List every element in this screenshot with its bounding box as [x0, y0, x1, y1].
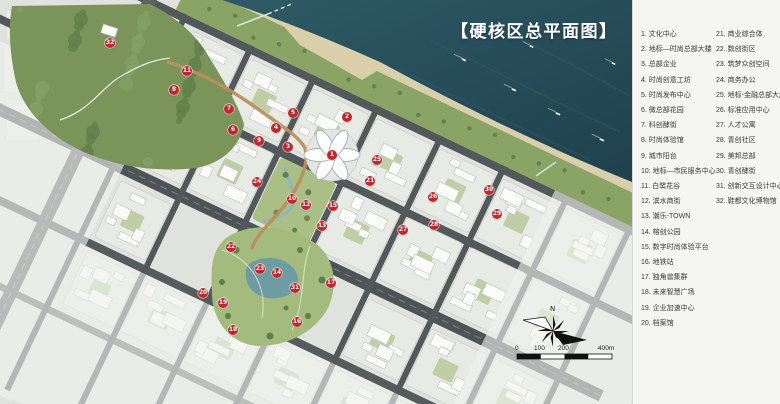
legend-column-1: 1. 文化中心2. 地标—时尚总部大楼3. 总部企业4. 时尚创意工坊5. 时尚… — [641, 27, 716, 331]
map-marker-9: 9 — [254, 136, 264, 146]
legend-item-29: 29. 美邦总部 — [716, 149, 780, 164]
legend-item-7: 7. 科创酵街 — [641, 118, 716, 133]
map-marker-1: 1 — [327, 150, 337, 160]
legend-item-9: 9. 城市阳台 — [641, 149, 716, 164]
map-marker-3: 3 — [283, 142, 293, 152]
legend-item-31: 31. 创新交互设计中心 — [716, 179, 780, 194]
legend-item-22: 22. 数创街区 — [716, 42, 780, 57]
map-marker-29: 29 — [492, 209, 502, 219]
map-marker-14: 14 — [272, 268, 282, 278]
legend-item-13: 13. 潮乐-TOWN — [641, 209, 716, 224]
map-marker-20: 20 — [198, 288, 208, 298]
legend-item-24: 24. 商务办公 — [716, 73, 780, 88]
legend-item-30: 30. 青创酵街 — [716, 164, 780, 179]
map-marker-7: 7 — [224, 104, 234, 114]
legend-item-5: 5. 时尚发布中心 — [641, 88, 716, 103]
legend-item-20: 20. 档案馆 — [641, 316, 716, 331]
legend-item-14: 14. 榕创公园 — [641, 225, 716, 240]
legend-item-23: 23. 筑梦众创空间 — [716, 57, 780, 72]
map-marker-19: 19 — [218, 298, 228, 308]
map-marker-11: 11 — [182, 66, 192, 76]
legend-item-8: 8. 时尚体验馆 — [641, 133, 716, 148]
map-marker-30: 30 — [484, 185, 494, 195]
map-canvas: N 0 100 200 400m 12345678910111213141516… — [0, 0, 632, 404]
legend-item-2: 2. 地标—时尚总部大楼 — [641, 42, 716, 57]
legend-column-2: 21. 商业综合体22. 数创街区23. 筑梦众创空间24. 商务办公25. 地… — [716, 27, 780, 209]
map-marker-5: 5 — [288, 108, 298, 118]
scale-label-400: 400m — [598, 345, 614, 352]
legend-item-25: 25. 地标-金融总部大厦 — [716, 88, 780, 103]
plan-title: 【硬核区总平面图】 — [451, 17, 631, 42]
map-marker-17: 17 — [326, 278, 336, 288]
legend-item-28: 28. 青创社区 — [716, 133, 780, 148]
map-marker-32: 32 — [105, 38, 115, 48]
legend-item-19: 19. 企业加速中心 — [641, 301, 716, 316]
map-marker-21: 21 — [365, 176, 375, 186]
legend-item-4: 4. 时尚创意工坊 — [641, 73, 716, 88]
legend-item-15: 15. 数字时尚体验平台 — [641, 240, 716, 255]
map-marker-12: 12 — [301, 200, 311, 210]
map-marker-28: 28 — [429, 220, 439, 230]
scale-label-100: 100 — [534, 345, 545, 352]
map-marker-13: 13 — [317, 221, 327, 231]
masterplan-image: N 0 100 200 400m 12345678910111213141516… — [0, 0, 780, 404]
legend-item-16: 16. 地铁站 — [641, 255, 716, 270]
legend-item-6: 6. 微总部花园 — [641, 103, 716, 118]
map-marker-27: 27 — [398, 225, 408, 235]
map-marker-26: 26 — [428, 192, 438, 202]
legend-panel: 1. 文化中心2. 地标—时尚总部大楼3. 总部企业4. 时尚创意工坊5. 时尚… — [632, 0, 780, 404]
map-marker-15: 15 — [328, 201, 338, 211]
legend-item-3: 3. 总部企业 — [641, 57, 716, 72]
map-marker-8: 8 — [169, 85, 179, 95]
map-marker-10: 10 — [287, 194, 297, 204]
legend-item-27: 27. 人才公寓 — [716, 118, 780, 133]
legend-item-1: 1. 文化中心 — [641, 27, 716, 42]
legend-item-12: 12. 滨水商街 — [641, 194, 716, 209]
map-marker-18: 18 — [228, 325, 238, 335]
map-marker-22: 22 — [226, 242, 236, 252]
legend-item-18: 18. 未来智慧广场 — [641, 285, 716, 300]
scale-label-0: 0 — [515, 345, 519, 352]
map-marker-31: 31 — [290, 283, 300, 293]
legend-item-11: 11. 白鹭花谷 — [641, 179, 716, 194]
map-marker-4: 4 — [271, 123, 281, 133]
scale-label-200: 200 — [558, 345, 569, 352]
legend-item-32: 32. 鞋都文化博物馆 — [716, 194, 780, 209]
legend-item-10: 10. 地标—市民服务中心 — [641, 164, 716, 179]
legend-item-17: 17. 独角兽集群 — [641, 270, 716, 285]
map-drawing: N 0 100 200 400m — [0, 0, 632, 404]
map-marker-16: 16 — [292, 317, 302, 327]
map-marker-23: 23 — [255, 264, 265, 274]
north-label: N — [550, 305, 555, 313]
map-marker-2: 2 — [342, 112, 352, 122]
map-marker-24: 24 — [252, 177, 262, 187]
map-marker-25: 25 — [372, 155, 382, 165]
legend-item-21: 21. 商业综合体 — [716, 27, 780, 42]
map-marker-6: 6 — [228, 125, 238, 135]
legend-item-26: 26. 标准应用中心 — [716, 103, 780, 118]
